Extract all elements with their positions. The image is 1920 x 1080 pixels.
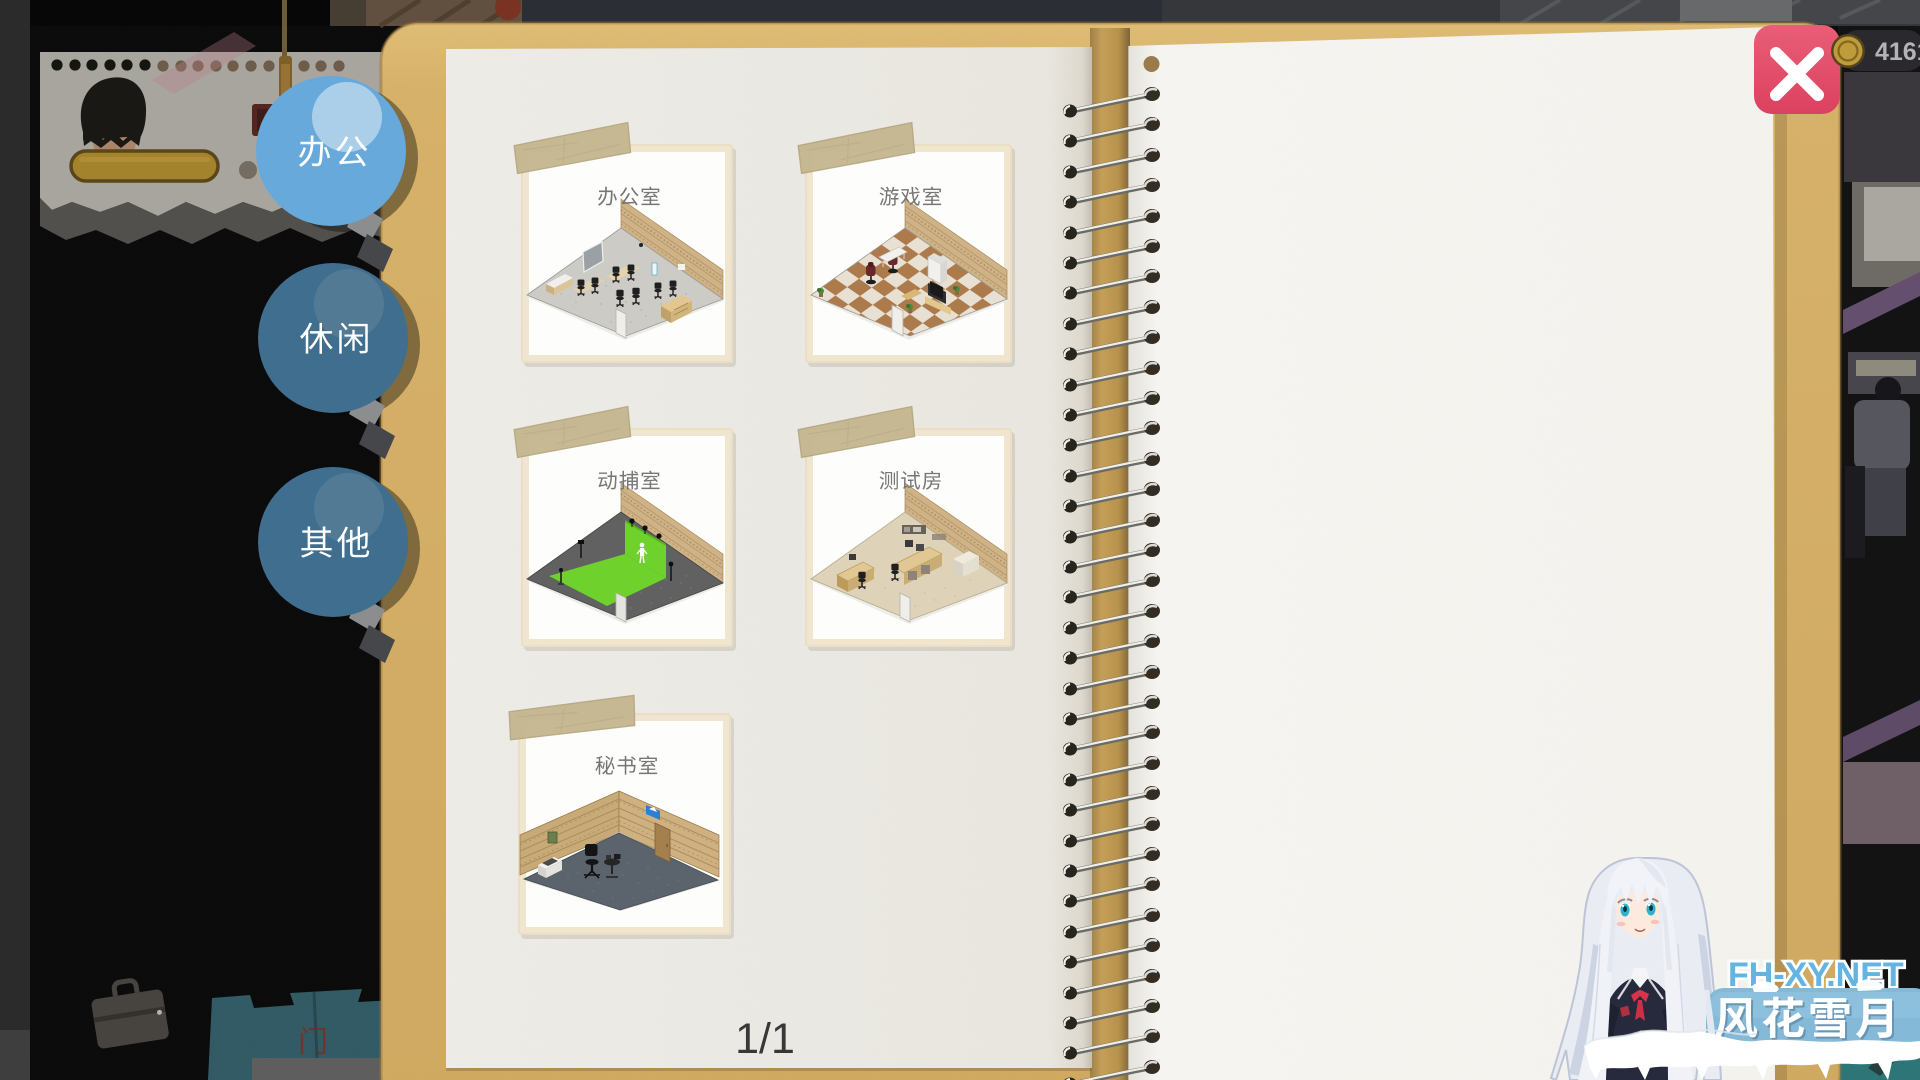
svg-text:1/1: 1/1	[735, 1015, 795, 1063]
svg-text:4161: 4161	[1875, 38, 1920, 66]
